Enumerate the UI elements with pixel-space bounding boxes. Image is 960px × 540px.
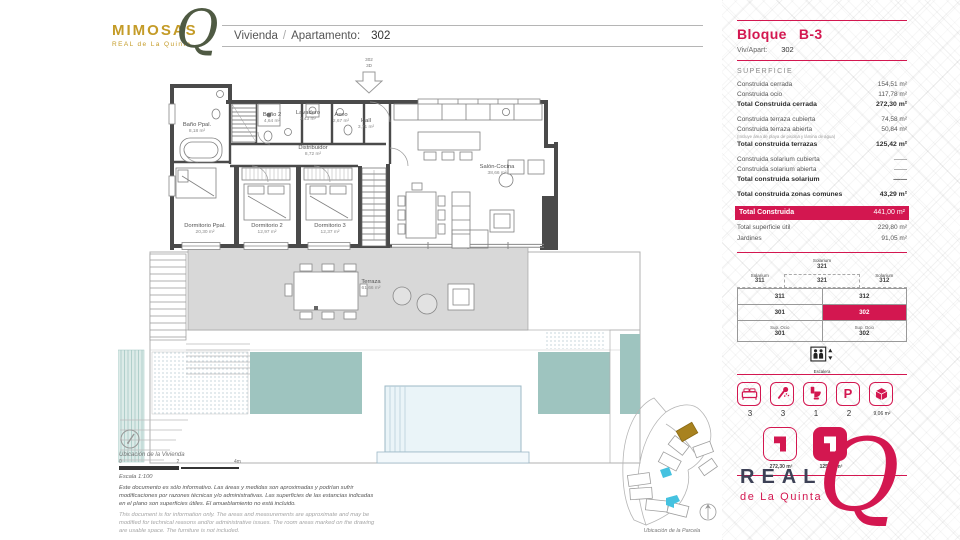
diagram-mid-cell: 321 xyxy=(784,274,859,288)
sheet-title: Vivienda / Apartamento: 302 xyxy=(222,25,703,47)
room-label-terraza: Terraza 61,66 m² xyxy=(341,279,401,292)
diagram-table: 311 312 301 302 Sup. Ocio 301 Sup. Ocio xyxy=(737,288,907,342)
room-label-dormitorio2: Dormitorio 2 12,97 m² xyxy=(237,223,297,236)
planter-left xyxy=(250,352,362,414)
row-terraza-cubierta: Construida terraza cubierta74,58 m² xyxy=(737,115,907,125)
pool xyxy=(377,386,529,463)
row-total-solarium: Total construida solarium—— xyxy=(737,175,907,185)
viv-apart: Viv/Apart:302 xyxy=(737,45,907,54)
amenity-storage: 9,06 m² xyxy=(869,382,895,418)
row-superficie-util: Total superficie útil229,80 m² xyxy=(737,223,907,233)
storage-area: 9,06 m² xyxy=(869,411,895,417)
cell-sup-ocio-301: Sup. Ocio 301 xyxy=(738,321,822,341)
block-label: Bloque xyxy=(737,26,787,42)
garden-stairs xyxy=(150,254,186,340)
total-label: Total Construida xyxy=(739,209,794,216)
cell-312: 312 xyxy=(822,289,907,304)
divider xyxy=(737,60,907,61)
brand-q-icon: Q xyxy=(818,426,900,526)
parking-icon: P xyxy=(836,382,860,406)
cell-302-highlighted: 302 xyxy=(822,305,907,320)
entry-label-floor: 3D xyxy=(366,63,372,68)
apartment-number: 302 xyxy=(371,30,390,42)
entry-label: 302 3D xyxy=(354,57,384,69)
row-construida-ocio: Construida ocio117,78 m² xyxy=(737,89,907,99)
gravel-right xyxy=(545,332,605,349)
plan-icon-built: 272,30 m² xyxy=(763,427,799,470)
block-diagram: Solarium 321 Solarium 311 321 Solarium 3… xyxy=(737,258,907,373)
total-value: 441,00 m² xyxy=(873,209,905,216)
divider xyxy=(737,252,907,253)
amenity-wc: 1 xyxy=(803,382,829,418)
mimosas-q-icon: Q xyxy=(176,4,219,56)
pool-upper xyxy=(660,467,672,478)
bathrooms-count: 3 xyxy=(770,409,796,418)
room-label-salon: Salón-Cocina 38,66 m² xyxy=(467,164,527,177)
interior-stairs xyxy=(362,168,386,246)
amenity-bedrooms: 3 xyxy=(737,382,763,418)
viv-label: Viv/Apart: xyxy=(737,47,767,54)
total-construida-banner: Total Construida 441,00 m² xyxy=(735,206,909,220)
divider xyxy=(737,20,907,21)
real-de-la-quinta-logo: REAL de La Quinta xyxy=(740,466,822,503)
superficie-title: SUPERFICIE xyxy=(737,68,907,75)
entry-arrow-icon xyxy=(356,72,382,93)
diagram-solarium-left: Solarium 311 xyxy=(737,273,782,288)
room-label-dormitorio3: Dormitorio 3 12,37 m² xyxy=(300,223,360,236)
disclaimer-es: Este documento es sólo informativo. Las … xyxy=(119,485,375,508)
title-word-1: Vivienda xyxy=(234,30,278,42)
storage-icon xyxy=(869,382,893,406)
brochure-page: MIMOSAS REAL de La Quinta Q Vivienda / A… xyxy=(0,0,960,540)
scale-bar: 0 2 4m xyxy=(119,459,241,470)
row-construida-cerrada: Construida cerrada154,51 m² xyxy=(737,79,907,89)
row-total-cerrada: Total Construida cerrada272,30 m² xyxy=(737,99,907,109)
row-solarium-cubierta: Construida solarium cubierta—— xyxy=(737,154,907,164)
ubicacion-vivienda-label: Ubicación de la Vivienda xyxy=(119,452,185,458)
cell-301: 301 xyxy=(738,305,822,320)
siteplan-drawing xyxy=(616,392,728,532)
divider xyxy=(737,374,907,375)
elevator-icon: Escalera xyxy=(737,346,907,374)
scale-tick-4: 4m xyxy=(234,459,241,465)
entry-label-number: 302 xyxy=(365,57,373,62)
room-label-hall: Hall 3,71 m² xyxy=(336,118,396,131)
cell-sup-ocio-302: Sup. Ocio 302 xyxy=(822,321,907,341)
row-jardines: Jardines91,05 m² xyxy=(737,233,907,243)
block-title: BloqueB-3 xyxy=(737,26,907,42)
north-arrow-icon xyxy=(700,504,716,520)
room-label-bano-ppal: Baño Ppal. 8,18 m² xyxy=(167,122,227,135)
amenities-row: 3 3 xyxy=(737,382,907,418)
scale-label: Escala 1:100 xyxy=(119,474,153,480)
viv-value: 302 xyxy=(781,45,794,54)
amenity-bathrooms: 3 xyxy=(770,382,796,418)
brand-real-text: REAL xyxy=(740,466,822,489)
gravel-left xyxy=(152,352,248,414)
compass-icon xyxy=(119,428,141,455)
row-zonas-comunes: Total construida zonas comunes43,29 m² xyxy=(737,190,907,200)
scale-tick-2: 2 xyxy=(177,459,180,465)
brand-sub-text: de La Quinta xyxy=(740,491,822,503)
disclaimer-en: This document is for information only. T… xyxy=(119,512,375,535)
planter-right xyxy=(538,352,610,414)
floorplan: 302 3D Baño Ppal. 8,18 m² Baño 2 4,64 m²… xyxy=(118,56,648,468)
row-solarium-abierta: Construida solarium abierta—— xyxy=(737,164,907,174)
room-label-distribuidor: Distribuidor 8,72 m² xyxy=(283,145,343,158)
shower-icon xyxy=(770,382,794,406)
scale-tick-0: 0 xyxy=(119,459,122,465)
cell-311: 311 xyxy=(738,289,822,304)
title-separator: / xyxy=(283,30,286,42)
ubicacion-parcela-label: Ubicación de la Parcela xyxy=(602,528,742,534)
bedrooms-count: 3 xyxy=(737,409,763,418)
bed-icon xyxy=(737,382,761,406)
diagram-solarium-right: Solarium 312 xyxy=(862,273,907,288)
block-value: B-3 xyxy=(799,26,823,42)
pillar xyxy=(542,196,556,248)
floorplan-outline-icon xyxy=(763,427,797,461)
wc-icon xyxy=(803,382,827,406)
amenity-parking: P 2 xyxy=(836,382,862,418)
diagram-solarium-top: Solarium 321 xyxy=(737,258,907,271)
room-label-dormitorio-ppal: Dormitorio Ppal. 20,30 m² xyxy=(175,223,235,236)
title-word-2: Apartamento: xyxy=(291,30,360,42)
row-total-terrazas: Total construida terrazas125,42 m² xyxy=(737,139,907,149)
